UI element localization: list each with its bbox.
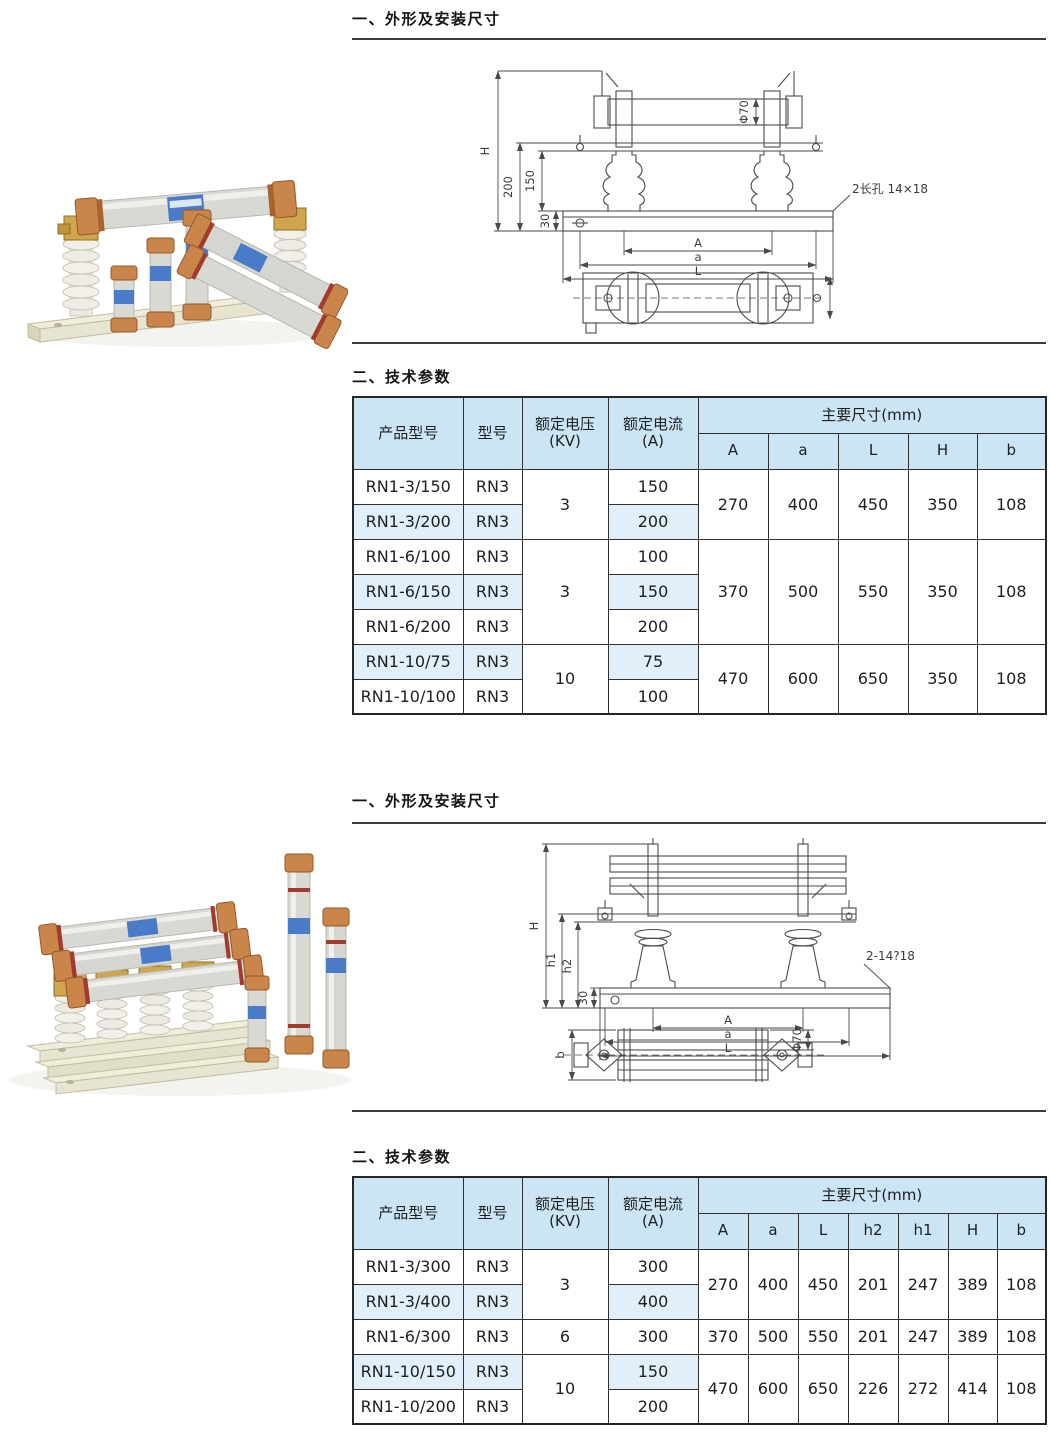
- cell-model: RN3: [463, 679, 522, 714]
- t1-header-current-line1: 额定电流: [609, 416, 698, 433]
- drawing1-note: 2长孔 14×18: [852, 182, 928, 196]
- cell-dim-h1: 247: [898, 1319, 948, 1354]
- catalog-page: 一、外形及安装尺寸: [0, 0, 1050, 1437]
- cell-model: RN3: [463, 1284, 522, 1319]
- table-row: RN1-3/300 RN3 3 300 270 400 450 201 247 …: [353, 1249, 1046, 1284]
- photo2-fuse-standing-tall: [285, 854, 313, 1054]
- section-title-params-1: 二、技术参数: [352, 366, 451, 387]
- cell-dim-L: 650: [798, 1354, 848, 1424]
- cell-product: RN1-10/100: [353, 679, 463, 714]
- t2-header-dim-L: L: [798, 1213, 848, 1249]
- dim-label-a: a: [694, 250, 701, 264]
- drawing2-bottom-view: [564, 1028, 824, 1082]
- cell-voltage: 3: [522, 1249, 608, 1319]
- drawing1-top-view: [573, 272, 830, 333]
- cell-model: RN3: [463, 504, 522, 539]
- cell-model: RN3: [463, 539, 522, 574]
- cell-current: 200: [608, 609, 698, 644]
- cell-dim-h1: 247: [898, 1249, 948, 1319]
- cell-dim-A: 370: [698, 1319, 748, 1354]
- cell-dim-b: 108: [997, 1354, 1046, 1424]
- cell-dim-h2: 201: [848, 1249, 898, 1319]
- cell-product: RN1-6/150: [353, 574, 463, 609]
- section-title-outline-1: 一、外形及安装尺寸: [352, 8, 501, 29]
- t2-header-voltage-line2: (KV): [523, 1213, 608, 1230]
- dim-label-phi70: Φ70: [737, 100, 751, 124]
- t2-header-dim-b: b: [997, 1213, 1046, 1249]
- photo1-fuse-vertical-small: [111, 266, 137, 332]
- t2-header-model: 型号: [463, 1177, 522, 1249]
- cell-dim-A: 370: [698, 539, 768, 644]
- cell-model: RN3: [463, 469, 522, 504]
- t2-header-current: 额定电流 (A): [608, 1177, 698, 1249]
- cell-dim-H: 350: [908, 539, 977, 644]
- cell-dim-b: 108: [977, 469, 1046, 539]
- dim-label-H: H: [478, 147, 492, 156]
- t1-header-product: 产品型号: [353, 397, 463, 469]
- t1-header-voltage: 额定电压 (KV): [522, 397, 608, 469]
- cell-dim-b: 108: [977, 539, 1046, 644]
- t1-header-dim-L: L: [838, 433, 908, 469]
- dim-label-150: 150: [523, 170, 537, 192]
- spec-table-1: 产品型号 型号 额定电压 (KV) 额定电流 (A) 主要尺寸(mm) A a …: [352, 396, 1047, 715]
- t2-header-main-dims: 主要尺寸(mm): [698, 1177, 1046, 1213]
- spec-table-2: 产品型号 型号 额定电压 (KV) 额定电流 (A) 主要尺寸(mm) A a …: [352, 1176, 1047, 1425]
- cell-voltage: 3: [522, 469, 608, 539]
- cell-model: RN3: [463, 1354, 522, 1389]
- cell-dim-b: 108: [997, 1249, 1046, 1319]
- cell-dim-H: 350: [908, 644, 977, 714]
- dim-label-30-2: 30: [576, 991, 590, 1006]
- cell-product: RN1-10/200: [353, 1389, 463, 1424]
- t2-header-current-line1: 额定电流: [609, 1196, 698, 1213]
- cell-dim-A: 470: [698, 644, 768, 714]
- photo1-fuse-vertical-mid: [147, 238, 174, 327]
- cell-product: RN1-3/400: [353, 1284, 463, 1319]
- table-row: RN1-10/150 RN3 10 150 470 600 650 226 27…: [353, 1354, 1046, 1389]
- cell-product: RN1-6/200: [353, 609, 463, 644]
- t1-header-current-line2: (A): [609, 433, 698, 450]
- cell-current: 300: [608, 1319, 698, 1354]
- table-row: RN1-3/150 RN3 3 150 270 400 450 350 108: [353, 469, 1046, 504]
- drawing2-dimensions: [542, 844, 890, 1060]
- dim-label-h2: h2: [560, 959, 574, 974]
- cell-product: RN1-3/300: [353, 1249, 463, 1284]
- cell-current: 150: [608, 574, 698, 609]
- t2-header-dim-h1: h1: [898, 1213, 948, 1249]
- cell-current: 150: [608, 469, 698, 504]
- cell-dim-b: 108: [997, 1319, 1046, 1354]
- rule-bottom-1: [352, 342, 1046, 344]
- cell-dim-L: 650: [838, 644, 908, 714]
- cell-dim-A: 270: [698, 469, 768, 539]
- product-photo-1: [18, 128, 348, 358]
- cell-dim-h2: 201: [848, 1319, 898, 1354]
- cell-dim-H: 389: [948, 1319, 997, 1354]
- t1-header-model: 型号: [463, 397, 522, 469]
- cell-dim-H: 350: [908, 469, 977, 539]
- photo2-fuse-standing-mid: [323, 908, 349, 1068]
- table-row: RN1-6/100 RN3 3 100 370 500 550 350 108: [353, 539, 1046, 574]
- cell-dim-A: 470: [698, 1354, 748, 1424]
- cell-dim-L: 550: [838, 539, 908, 644]
- dim-label-a2: a: [724, 1027, 731, 1041]
- cell-dim-a: 600: [748, 1354, 798, 1424]
- cell-dim-L: 550: [798, 1319, 848, 1354]
- dimension-drawing-1: H 200 150 30 Φ70 A a L 2长孔 14×18: [468, 55, 1018, 347]
- cell-model: RN3: [463, 574, 522, 609]
- cell-voltage: 10: [522, 1354, 608, 1424]
- cell-current: 400: [608, 1284, 698, 1319]
- cell-product: RN1-3/150: [353, 469, 463, 504]
- cell-model: RN3: [463, 1249, 522, 1284]
- dim-label-h1: h1: [544, 953, 558, 968]
- dim-label-200: 200: [501, 176, 515, 198]
- cell-voltage: 10: [522, 644, 608, 714]
- dim-label-30: 30: [538, 214, 552, 229]
- cell-product: RN1-6/100: [353, 539, 463, 574]
- table-row: RN1-10/75 RN3 10 75 470 600 650 350 108: [353, 644, 1046, 679]
- cell-product: RN1-3/200: [353, 504, 463, 539]
- cell-model: RN3: [463, 1389, 522, 1424]
- dim-label-phi70-2: Φ70: [790, 1028, 804, 1052]
- cell-dim-A: 270: [698, 1249, 748, 1319]
- rule-bottom-2: [352, 1110, 1046, 1112]
- cell-dim-h1: 272: [898, 1354, 948, 1424]
- photo2-fuse-stack: [38, 899, 264, 1011]
- cell-dim-a: 400: [748, 1249, 798, 1319]
- section-title-params-2: 二、技术参数: [352, 1146, 451, 1167]
- cell-model: RN3: [463, 1319, 522, 1354]
- drawing1-dimensions: [494, 71, 850, 283]
- cell-current: 100: [608, 539, 698, 574]
- t1-header-dim-A: A: [698, 433, 768, 469]
- dimension-drawing-2: H h1 h2 30 A a L 2-14?18: [468, 838, 1018, 1110]
- cell-voltage: 3: [522, 539, 608, 644]
- t2-header-voltage-line1: 额定电压: [523, 1196, 608, 1213]
- cell-dim-a: 500: [748, 1319, 798, 1354]
- cell-current: 300: [608, 1249, 698, 1284]
- cell-voltage: 6: [522, 1319, 608, 1354]
- t2-header-dim-A: A: [698, 1213, 748, 1249]
- t1-header-dim-b: b: [977, 433, 1046, 469]
- rule-top-2: [352, 822, 1046, 824]
- t1-header-dim-H: H: [908, 433, 977, 469]
- cell-dim-L: 450: [838, 469, 908, 539]
- cell-current: 75: [608, 644, 698, 679]
- cell-dim-b: 108: [977, 644, 1046, 714]
- t1-header-dim-a: a: [768, 433, 838, 469]
- t1-header-main-dims: 主要尺寸(mm): [698, 397, 1046, 433]
- t1-header-voltage-line2: (KV): [523, 433, 608, 450]
- cell-dim-h2: 226: [848, 1354, 898, 1424]
- cell-current: 200: [608, 504, 698, 539]
- drawing1-front-view: [563, 71, 833, 231]
- dim-label-L: L: [695, 264, 702, 278]
- cell-current: 200: [608, 1389, 698, 1424]
- rule-top-1: [352, 38, 1046, 40]
- cell-product: RN1-6/300: [353, 1319, 463, 1354]
- cell-product: RN1-10/150: [353, 1354, 463, 1389]
- cell-dim-a: 400: [768, 469, 838, 539]
- dim-label-L2: L: [725, 1041, 732, 1055]
- cell-current: 100: [608, 679, 698, 714]
- drawing2-bottom-labels: b Φ70: [553, 1028, 804, 1059]
- cell-model: RN3: [463, 609, 522, 644]
- t2-header-dim-H: H: [948, 1213, 997, 1249]
- cell-dim-H: 414: [948, 1354, 997, 1424]
- drawing2-note: 2-14?18: [866, 949, 915, 963]
- cell-product: RN1-10/75: [353, 644, 463, 679]
- cell-dim-a: 600: [768, 644, 838, 714]
- table-row: RN1-6/300 RN3 6 300 370 500 550 201 247 …: [353, 1319, 1046, 1354]
- product-photo-2: [0, 828, 362, 1120]
- t1-header-current: 额定电流 (A): [608, 397, 698, 469]
- t2-header-current-line2: (A): [609, 1213, 698, 1230]
- dim-label-A: A: [694, 236, 702, 250]
- t2-header-product: 产品型号: [353, 1177, 463, 1249]
- dim-label-H2: H: [527, 922, 541, 931]
- t2-header-dim-h2: h2: [848, 1213, 898, 1249]
- t1-header-voltage-line1: 额定电压: [523, 416, 608, 433]
- dim-label-b: b: [553, 1051, 567, 1058]
- cell-model: RN3: [463, 644, 522, 679]
- drawing2-front-view: [598, 838, 890, 1008]
- t2-header-dim-a: a: [748, 1213, 798, 1249]
- cell-dim-L: 450: [798, 1249, 848, 1319]
- photo2-fuse-standing-small: [245, 976, 269, 1062]
- dim-label-A2: A: [724, 1013, 732, 1027]
- t2-header-voltage: 额定电压 (KV): [522, 1177, 608, 1249]
- cell-dim-H: 389: [948, 1249, 997, 1319]
- section-title-outline-2: 一、外形及安装尺寸: [352, 790, 501, 811]
- cell-dim-a: 500: [768, 539, 838, 644]
- cell-current: 150: [608, 1354, 698, 1389]
